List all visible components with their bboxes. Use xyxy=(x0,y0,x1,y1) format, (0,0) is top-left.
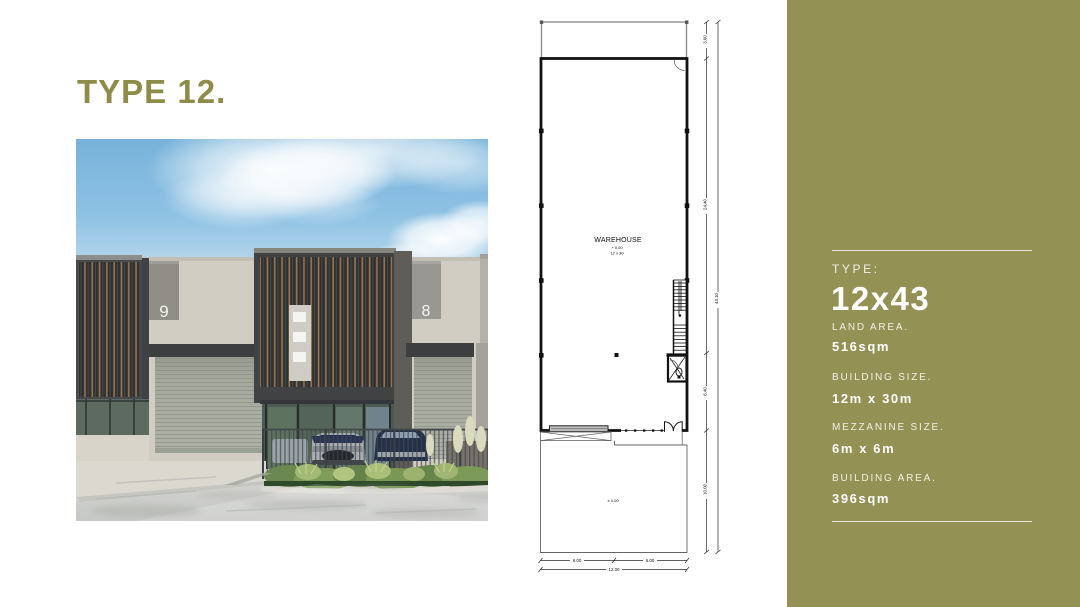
svg-text:24.40: 24.40 xyxy=(703,198,708,210)
svg-text:6.00: 6.00 xyxy=(573,558,582,563)
svg-text:3.60: 3.60 xyxy=(703,35,708,44)
svg-text:8: 8 xyxy=(422,303,431,320)
svg-text:12 x 30: 12 x 30 xyxy=(610,251,624,256)
svg-text:43.10: 43.10 xyxy=(714,292,719,304)
svg-text:+ 0.00: + 0.00 xyxy=(611,245,623,250)
svg-text:10.00: 10.00 xyxy=(703,483,708,495)
svg-text:± 0.00: ± 0.00 xyxy=(607,498,619,503)
svg-text:12.00: 12.00 xyxy=(609,567,621,572)
svg-text:WAREHOUSE: WAREHOUSE xyxy=(594,237,642,244)
svg-text:6.40: 6.40 xyxy=(703,387,708,396)
svg-text:6.00: 6.00 xyxy=(646,558,655,563)
svg-text:9: 9 xyxy=(159,302,168,321)
